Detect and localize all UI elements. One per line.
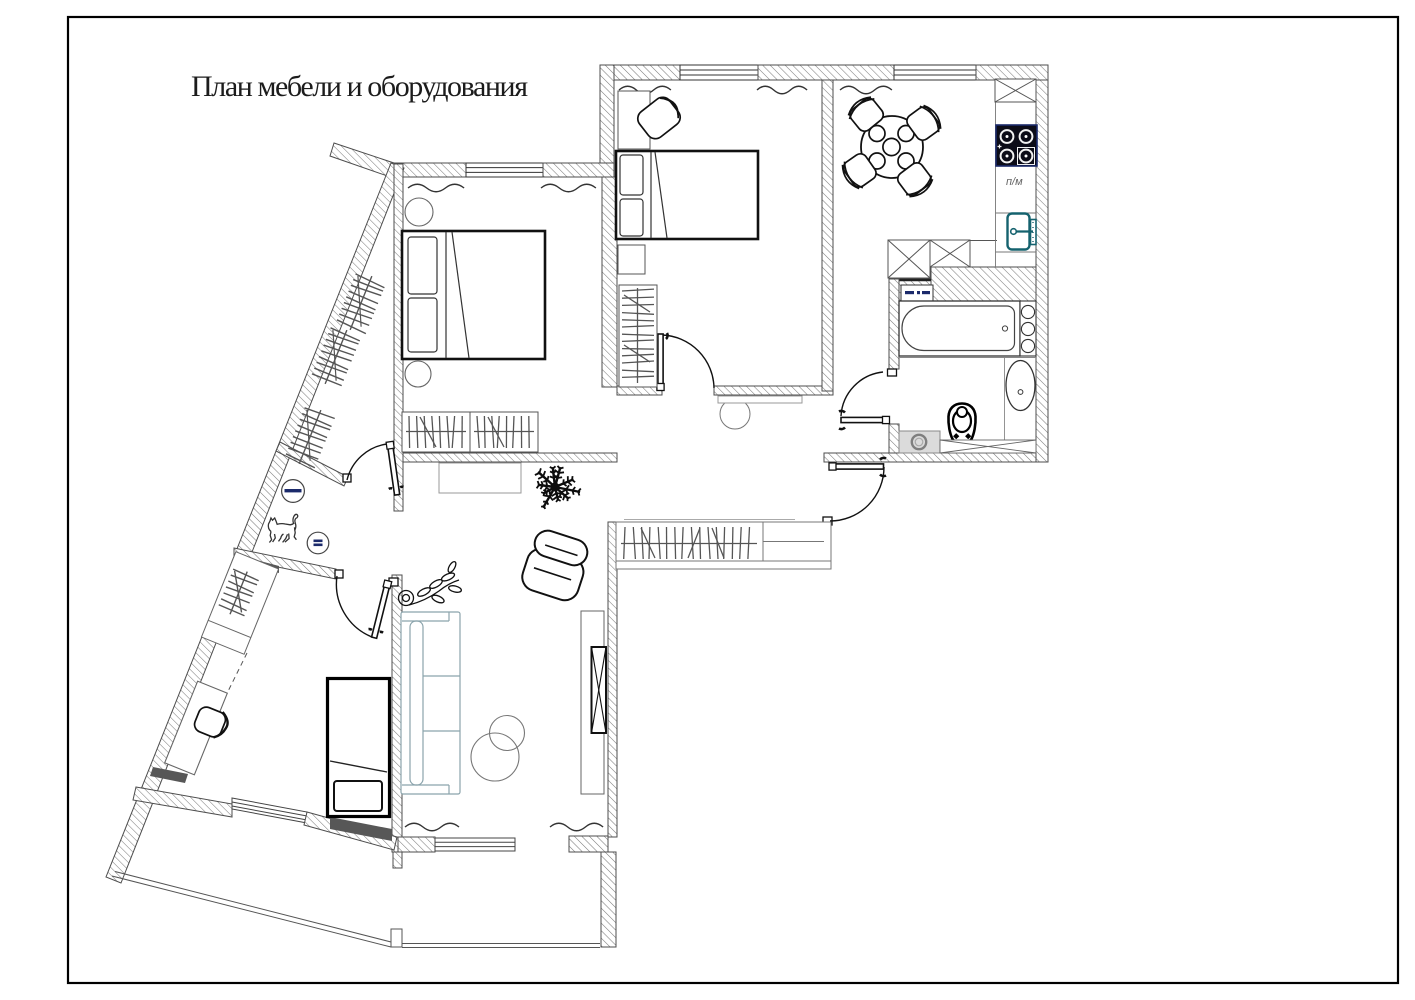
- svg-text:План мебели и оборудования: План мебели и оборудования: [191, 70, 528, 103]
- svg-text:п/м: п/м: [1006, 176, 1023, 188]
